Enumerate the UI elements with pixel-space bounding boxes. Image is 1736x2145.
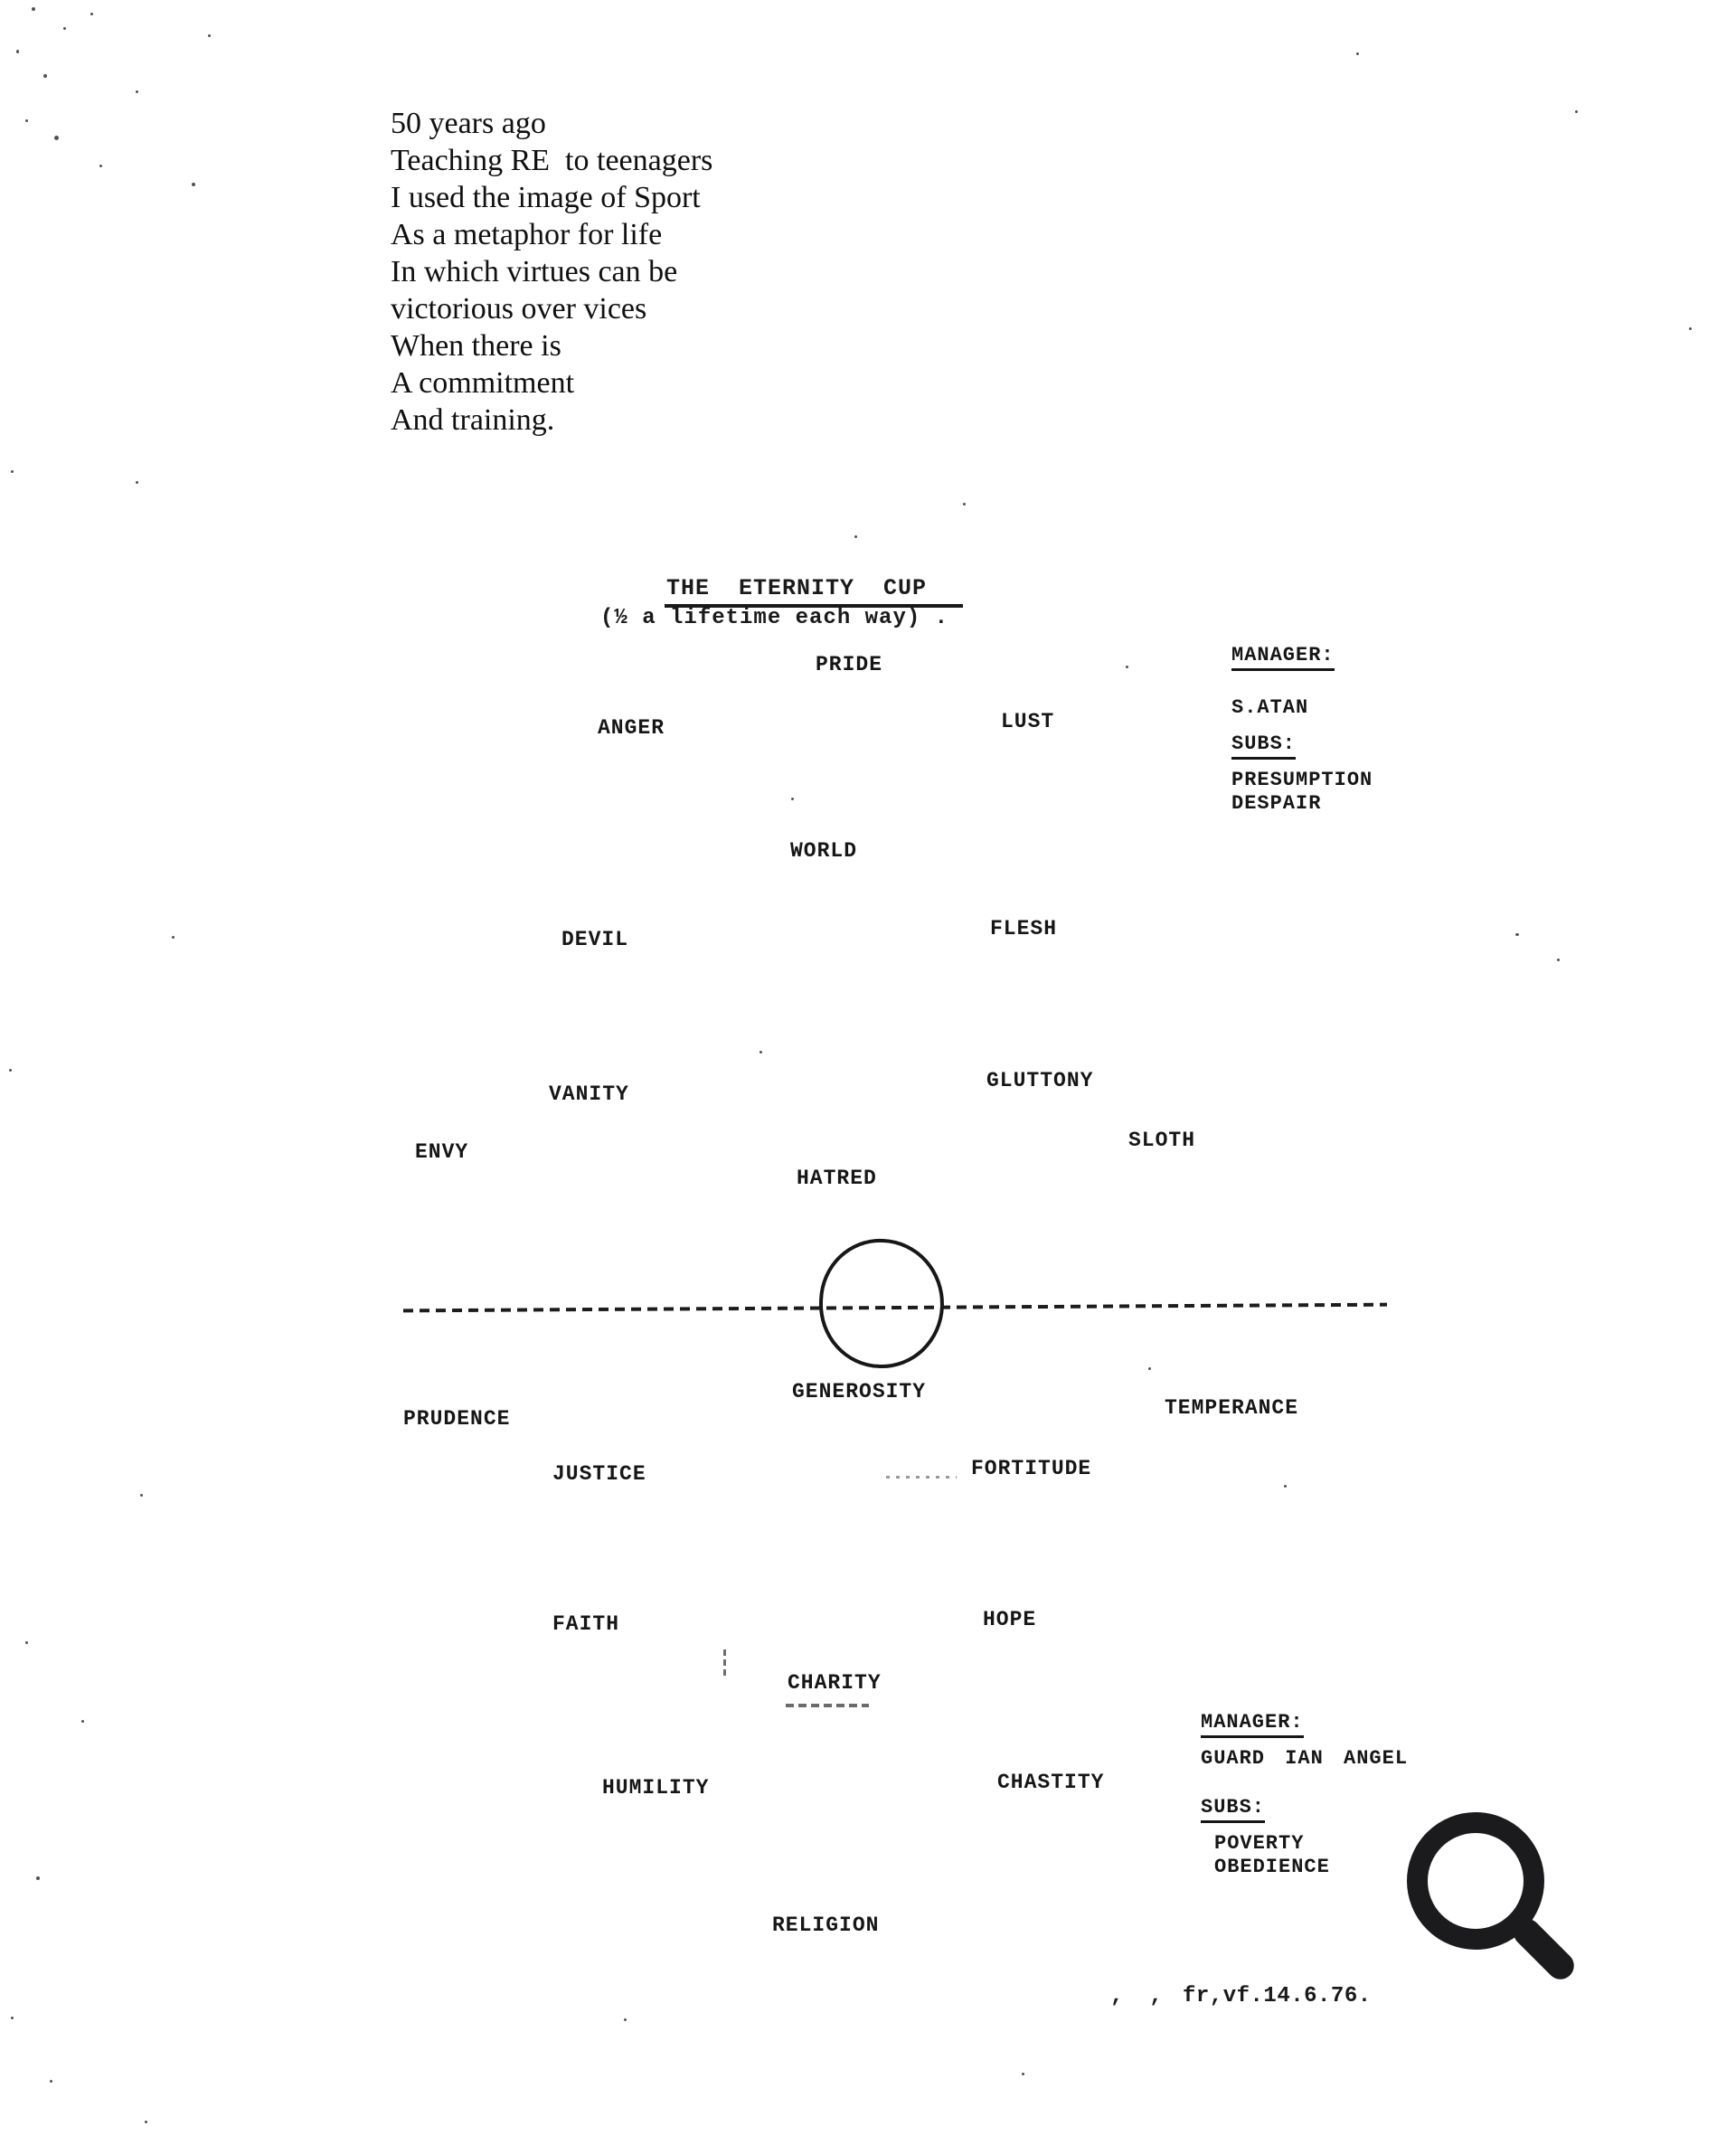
player-prudence: PRUDENCE bbox=[403, 1407, 510, 1431]
scan-speck bbox=[1575, 110, 1578, 113]
player-flesh: FLESH bbox=[990, 917, 1057, 940]
player-hatred: HATRED bbox=[797, 1167, 877, 1190]
scan-speck bbox=[854, 535, 857, 538]
vices-sub: DESPAIR bbox=[1231, 792, 1373, 816]
player-faith: FAITH bbox=[552, 1612, 619, 1636]
poem-line: In which virtues can be bbox=[391, 253, 712, 290]
player-world: WORLD bbox=[790, 839, 857, 863]
vices-manager-block: MANAGER: S.ATAN SUBS: PRESUMPTION DESPAI… bbox=[1231, 644, 1373, 816]
player-anger: ANGER bbox=[598, 716, 665, 740]
scan-speck bbox=[624, 2018, 627, 2021]
vices-sub: PRESUMPTION bbox=[1231, 769, 1373, 792]
vices-subs-heading: SUBS: bbox=[1231, 732, 1296, 760]
scan-speck bbox=[50, 2080, 52, 2083]
scan-speck bbox=[90, 13, 93, 15]
scan-speck bbox=[759, 1051, 762, 1054]
player-generosity: GENEROSITY bbox=[792, 1380, 926, 1403]
player-devil: DEVIL bbox=[561, 928, 628, 951]
magnifying-glass-icon[interactable] bbox=[1407, 1812, 1575, 1986]
scan-speck bbox=[54, 136, 59, 140]
footer-stray-marks: , , bbox=[1110, 1984, 1163, 2008]
player-fortitude: FORTITUDE bbox=[971, 1457, 1091, 1480]
scan-smudge bbox=[886, 1476, 957, 1479]
scan-speck bbox=[1356, 52, 1359, 55]
virtues-manager-name: GUARD IAN ANGEL bbox=[1201, 1747, 1408, 1771]
scan-speck bbox=[791, 798, 794, 800]
magnifier-handle bbox=[1508, 1913, 1580, 1985]
footer-reference: fr,vf.14.6.76. bbox=[1183, 1984, 1372, 2008]
player-temperance: TEMPERANCE bbox=[1165, 1396, 1298, 1420]
scan-speck bbox=[145, 2121, 147, 2123]
scan-speck bbox=[25, 1641, 28, 1644]
scan-speck bbox=[963, 503, 966, 506]
vices-manager-heading: MANAGER: bbox=[1231, 644, 1335, 671]
player-lust: LUST bbox=[1001, 710, 1054, 733]
scan-speck bbox=[1689, 327, 1692, 330]
poem-line: victorious over vices bbox=[391, 290, 712, 327]
scan-speck bbox=[136, 90, 138, 93]
poem-line: When there is bbox=[391, 327, 712, 364]
poem: 50 years ago Teaching RE to teenagers I … bbox=[391, 105, 712, 439]
diagram-subtitle: (½ a lifetime each way) . bbox=[600, 606, 948, 630]
scan-speck bbox=[81, 1720, 84, 1723]
scan-speck bbox=[36, 1876, 40, 1880]
scan-speck bbox=[172, 936, 175, 939]
scan-speck bbox=[1557, 959, 1560, 961]
poem-line: Teaching RE to teenagers bbox=[391, 142, 712, 179]
scan-speck bbox=[192, 183, 195, 186]
poem-line: And training. bbox=[391, 402, 712, 439]
scan-speck bbox=[25, 119, 28, 122]
poem-line: A commitment bbox=[391, 364, 712, 402]
scan-smudge bbox=[723, 1649, 726, 1678]
scan-speck bbox=[32, 7, 35, 11]
player-chastity: CHASTITY bbox=[997, 1771, 1104, 1794]
player-sloth: SLOTH bbox=[1128, 1129, 1195, 1152]
scan-speck bbox=[9, 1069, 12, 1072]
scan-speck bbox=[1022, 2073, 1024, 2075]
scan-speck bbox=[99, 165, 102, 167]
player-justice: JUSTICE bbox=[552, 1462, 646, 1486]
player-humility: HUMILITY bbox=[602, 1776, 709, 1800]
scan-speck bbox=[1148, 1367, 1151, 1370]
virtues-manager-block: MANAGER: GUARD IAN ANGEL SUBS: POVERTY O… bbox=[1201, 1711, 1408, 1879]
scan-speck bbox=[1515, 933, 1519, 936]
scan-speck bbox=[16, 50, 19, 53]
scan-speck bbox=[1284, 1485, 1287, 1488]
poem-line: As a metaphor for life bbox=[391, 216, 712, 253]
virtues-sub: POVERTY bbox=[1201, 1832, 1408, 1856]
player-gluttony: GLUTTONY bbox=[986, 1069, 1093, 1092]
player-charity: CHARITY bbox=[788, 1671, 882, 1695]
virtues-manager-heading: MANAGER: bbox=[1201, 1711, 1304, 1738]
diagram-title: THE ETERNITY CUP bbox=[665, 575, 963, 608]
virtues-subs-heading: SUBS: bbox=[1201, 1796, 1265, 1823]
player-envy: ENVY bbox=[415, 1140, 468, 1164]
vices-manager-name: S.ATAN bbox=[1231, 696, 1373, 720]
poem-line: 50 years ago bbox=[391, 105, 712, 142]
player-pride: PRIDE bbox=[816, 653, 882, 676]
virtues-sub: OBEDIENCE bbox=[1201, 1856, 1408, 1879]
player-vanity: VANITY bbox=[549, 1082, 629, 1106]
scan-speck bbox=[11, 470, 14, 473]
scan-speck bbox=[1126, 666, 1128, 668]
scan-speck bbox=[140, 1494, 143, 1497]
scan-speck bbox=[43, 74, 47, 78]
scan-speck bbox=[136, 481, 138, 484]
player-religion: RELIGION bbox=[772, 1913, 879, 1937]
scan-speck bbox=[11, 2017, 14, 2019]
scan-speck bbox=[63, 27, 66, 30]
poem-line: I used the image of Sport bbox=[391, 179, 712, 216]
centre-circle bbox=[817, 1237, 947, 1371]
scan-speck bbox=[208, 34, 211, 37]
scan-smudge bbox=[786, 1704, 869, 1707]
player-hope: HOPE bbox=[983, 1608, 1036, 1631]
